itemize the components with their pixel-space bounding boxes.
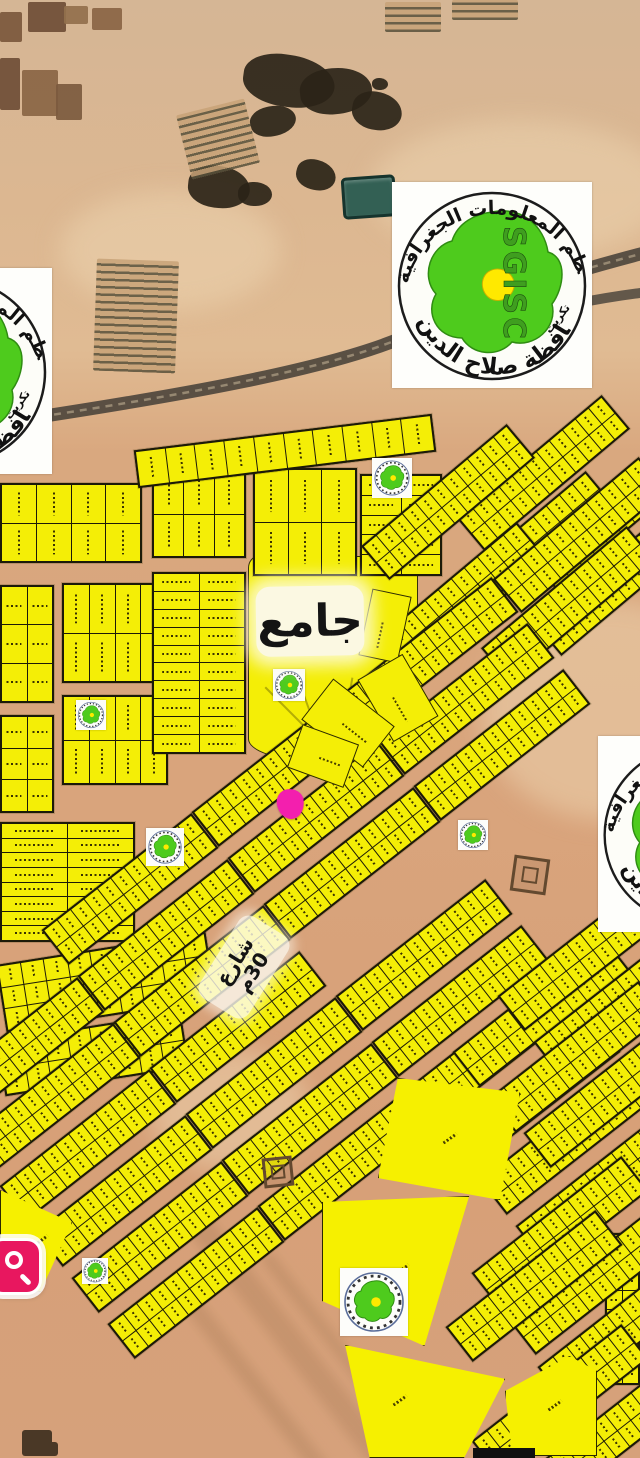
sgisc-mini-stamp [273, 669, 305, 701]
watermark-layer: SGISCنظم المعلومات الجغرافيةمحافظة صلاح … [0, 0, 640, 1458]
search-icon-handle [19, 1273, 32, 1286]
search-button[interactable] [0, 1238, 42, 1295]
sgisc-mini-stamp [458, 820, 488, 850]
sgisc-watermark [76, 700, 106, 730]
search-icon [5, 1251, 23, 1269]
sgisc-stamp-logo: SGISCنظم المعلومات الجغرافيةمحافظة صلاح … [0, 268, 52, 474]
sgisc-mini-stamp [146, 828, 184, 866]
sgisc-watermark [372, 458, 412, 498]
sgisc-stamp: SGISCنظم المعلومات الجغرافيةمحافظة صلاح … [598, 736, 640, 932]
sgisc-mini-stamp [82, 1258, 108, 1284]
sgisc-mini-stamp [340, 1268, 408, 1336]
sgisc-stamp: SGISCنظم المعلومات الجغرافيةمحافظة صلاح … [392, 182, 592, 388]
mosque-label: جامع [255, 585, 364, 657]
svg-text:SGISC: SGISC [496, 226, 531, 342]
sgisc-mini-stamp [76, 700, 106, 730]
sgisc-stamp: SGISCنظم المعلومات الجغرافيةمحافظة صلاح … [0, 268, 52, 474]
sgisc-stamp-logo: SGISCنظم المعلومات الجغرافيةمحافظة صلاح … [392, 182, 592, 388]
sgisc-stamp-logo: SGISCنظم المعلومات الجغرافيةمحافظة صلاح … [598, 736, 640, 932]
sgisc-watermark [146, 828, 184, 866]
sgisc-watermark [458, 820, 488, 850]
map-canvas[interactable]: SGISCنظم المعلومات الجغرافيةمحافظة صلاح … [0, 0, 640, 1458]
sgisc-watermark [273, 669, 305, 701]
sgisc-watermark [82, 1258, 108, 1284]
sgisc-watermark [340, 1268, 408, 1336]
sgisc-mini-stamp [372, 458, 412, 498]
